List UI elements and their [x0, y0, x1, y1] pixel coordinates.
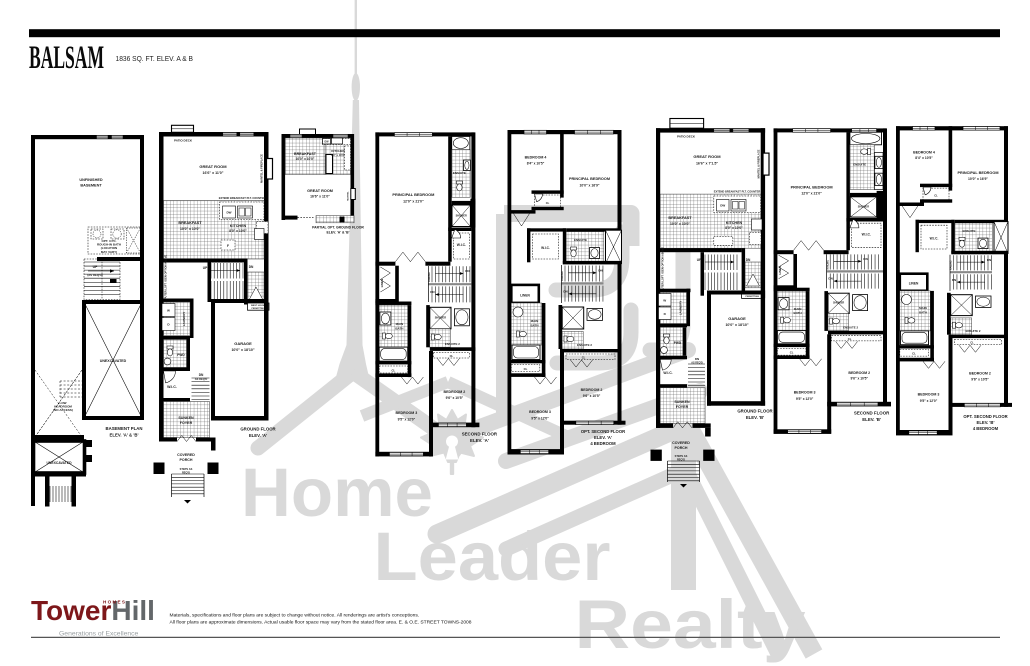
- svg-text:CL: CL: [450, 354, 454, 358]
- svg-text:OPT. SECOND FLOOR: OPT. SECOND FLOOR: [963, 414, 1007, 419]
- svg-text:LINEN: LINEN: [380, 279, 384, 287]
- svg-text:ELEV. 'B': ELEV. 'B': [746, 415, 764, 420]
- svg-text:GROUND FLOOR: GROUND FLOOR: [737, 409, 773, 414]
- svg-text:DW: DW: [227, 211, 232, 215]
- svg-text:10'0" x 18'10": 10'0" x 18'10": [231, 348, 254, 352]
- svg-text:ENSUITE: ENSUITE: [853, 163, 866, 167]
- svg-text:SECOND FLOOR: SECOND FLOOR: [462, 432, 498, 437]
- svg-text:BREAKFAST: BREAKFAST: [178, 221, 202, 225]
- svg-text:W: W: [167, 309, 170, 313]
- svg-text:RAILING: RAILING: [826, 260, 829, 270]
- svg-text:BEDROOM 4: BEDROOM 4: [525, 156, 547, 160]
- svg-text:W.I.C.: W.I.C.: [167, 385, 177, 389]
- svg-text:MAY VARY): MAY VARY): [101, 250, 117, 254]
- svg-text:9'6" x 10'5": 9'6" x 10'5": [583, 394, 601, 398]
- svg-text:GREAT ROOM: GREAT ROOM: [199, 164, 227, 169]
- svg-text:Materials, specifications and: Materials, specifications and floor plan…: [170, 612, 420, 618]
- svg-text:BEDROOM 4: BEDROOM 4: [913, 150, 935, 154]
- svg-text:ELEV. 'A': ELEV. 'A': [470, 438, 489, 443]
- svg-text:FOYER: FOYER: [180, 421, 193, 425]
- svg-text:DN: DN: [695, 357, 699, 361]
- svg-text:H O M E S: H O M E S: [103, 599, 125, 604]
- svg-text:10'0" x 16'9": 10'0" x 16'9": [580, 184, 600, 188]
- svg-text:PORCH: PORCH: [675, 446, 688, 450]
- svg-text:10'0" x 10'0": 10'0" x 10'0": [670, 222, 690, 226]
- svg-text:10'0" x 10'0": 10'0" x 10'0": [180, 227, 200, 231]
- svg-text:9'5" x 12'0": 9'5" x 12'0": [796, 397, 814, 401]
- svg-text:TowerHill: TowerHill: [31, 595, 155, 626]
- svg-text:9'5" x 12'0": 9'5" x 12'0": [398, 418, 416, 422]
- svg-text:BEDROOM 3: BEDROOM 3: [529, 410, 551, 414]
- svg-text:BEDROOM 2: BEDROOM 2: [444, 390, 466, 394]
- svg-text:BEDROOM 2: BEDROOM 2: [581, 388, 603, 392]
- svg-text:ENSUITE: ENSUITE: [962, 229, 975, 233]
- svg-text:BATH: BATH: [794, 311, 802, 315]
- svg-text:4 BEDROOM: 4 BEDROOM: [590, 441, 616, 446]
- svg-text:UP: UP: [93, 265, 98, 269]
- svg-text:DN: DN: [465, 269, 469, 273]
- svg-text:8'0" x 10'0": 8'0" x 10'0": [725, 226, 743, 230]
- svg-text:LAUNDRY: LAUNDRY: [182, 312, 186, 327]
- svg-text:1836 SQ. FT. ELEV. A & B: 1836 SQ. FT. ELEV. A & B: [116, 54, 194, 63]
- svg-text:DN: DN: [987, 258, 991, 262]
- svg-text:BASEMENT: BASEMENT: [80, 184, 102, 188]
- svg-text:Generations of Excellence: Generations of Excellence: [59, 630, 139, 637]
- svg-text:GROUND FLOOR: GROUND FLOOR: [240, 427, 276, 432]
- svg-text:UNFINISHED: UNFINISHED: [79, 178, 102, 182]
- svg-text:(NO ACCESS): (NO ACCESS): [53, 408, 73, 412]
- svg-text:All floor plans are approximat: All floor plans are approximate dimensio…: [170, 620, 472, 626]
- svg-text:ENSUITE 2: ENSUITE 2: [445, 342, 460, 346]
- svg-text:PERMITTING: PERMITTING: [251, 308, 265, 310]
- svg-text:9'6" x 10'5": 9'6" x 10'5": [851, 377, 869, 381]
- svg-text:DN: DN: [249, 265, 254, 269]
- svg-text:BREAKFAST: BREAKFAST: [668, 216, 692, 220]
- svg-text:MANTEL & FIREPLACE: MANTEL & FIREPLACE: [757, 149, 761, 178]
- svg-text:CL: CL: [848, 337, 852, 341]
- svg-text:W: W: [663, 299, 666, 303]
- svg-text:SECOND FLOOR: SECOND FLOOR: [854, 411, 890, 416]
- svg-text:10'0" x 10'0": 10'0" x 10'0": [296, 157, 315, 161]
- svg-text:DN: DN: [828, 277, 832, 281]
- svg-text:Leader: Leader: [374, 518, 611, 595]
- svg-text:ELEV. 'A' & 'B': ELEV. 'A' & 'B': [327, 230, 350, 234]
- svg-text:ENSUITE 2: ENSUITE 2: [966, 329, 981, 333]
- svg-text:10'0" x 18'10": 10'0" x 18'10": [725, 323, 748, 327]
- svg-text:SUNKEN: SUNKEN: [178, 416, 194, 420]
- svg-text:WEST HOUSE: WEST HOUSE: [251, 305, 266, 307]
- svg-text:STEPS AS: STEPS AS: [675, 454, 688, 458]
- svg-text:W.I.C.: W.I.C.: [862, 232, 871, 236]
- svg-text:PATIO DECK: PATIO DECK: [677, 135, 696, 139]
- svg-text:PRINCIPAL BEDROOM: PRINCIPAL BEDROOM: [791, 184, 833, 189]
- svg-text:SHOWER: SHOWER: [833, 302, 844, 305]
- svg-text:PWD: PWD: [177, 353, 185, 357]
- svg-text:16'6" x 11'0": 16'6" x 11'0": [310, 195, 330, 199]
- svg-text:9'5" x 12'0": 9'5" x 12'0": [531, 417, 549, 421]
- svg-text:DN: DN: [598, 269, 602, 273]
- svg-text:LAUNDRY: LAUNDRY: [679, 301, 683, 316]
- svg-text:W.I.C.: W.I.C.: [541, 246, 550, 250]
- svg-text:ELEV. 'A': ELEV. 'A': [594, 435, 612, 440]
- svg-text:KITCHEN: KITCHEN: [331, 149, 344, 153]
- svg-text:AS REQ'D: AS REQ'D: [691, 361, 703, 364]
- svg-text:PARTIAL OPT. GROUND FLOOR: PARTIAL OPT. GROUND FLOOR: [312, 226, 364, 230]
- svg-text:DN: DN: [952, 278, 956, 282]
- svg-text:8'0" x 10'0": 8'0" x 10'0": [331, 153, 346, 157]
- svg-text:AS REQ'D: AS REQ'D: [195, 377, 208, 381]
- svg-text:ENSUITE: ENSUITE: [574, 238, 587, 242]
- svg-text:PERMITTING: PERMITTING: [746, 296, 760, 298]
- svg-text:PWD: PWD: [674, 341, 682, 345]
- svg-text:BATH: BATH: [395, 327, 403, 331]
- svg-text:BEDROOM 3: BEDROOM 3: [794, 391, 816, 395]
- svg-text:MAIN: MAIN: [531, 319, 539, 323]
- svg-text:DN: DN: [430, 290, 434, 294]
- svg-text:LINEN: LINEN: [520, 294, 530, 298]
- svg-text:CL: CL: [790, 351, 794, 355]
- svg-text:EXTEND BREAKFAST PLT. COUNTER: EXTEND BREAKFAST PLT. COUNTER: [219, 196, 266, 200]
- svg-text:PATIO DECK: PATIO DECK: [174, 139, 193, 143]
- svg-text:PRINCIPAL BEDROOM: PRINCIPAL BEDROOM: [392, 192, 434, 197]
- svg-text:W.I.C.: W.I.C.: [457, 243, 466, 247]
- svg-text:PRINCIPAL BEDROOM: PRINCIPAL BEDROOM: [569, 177, 610, 181]
- svg-text:DN: DN: [199, 373, 204, 377]
- svg-text:F: F: [227, 244, 229, 248]
- svg-text:BEDROOM 2: BEDROOM 2: [969, 372, 991, 376]
- svg-text:ENSUITE 2: ENSUITE 2: [843, 326, 858, 330]
- svg-text:RAILING: RAILING: [428, 272, 431, 282]
- svg-text:COVERED: COVERED: [177, 453, 195, 457]
- svg-text:ELEV. 'A' & 'B': ELEV. 'A' & 'B': [110, 432, 139, 437]
- svg-text:COVERED: COVERED: [672, 441, 690, 445]
- svg-text:DN: DN: [746, 258, 751, 262]
- svg-text:GREAT ROOM: GREAT ROOM: [693, 154, 721, 159]
- svg-text:OPT. SECOND FLOOR: OPT. SECOND FLOOR: [581, 429, 625, 434]
- svg-text:SHOWER: SHOWER: [456, 215, 467, 218]
- svg-text:SHOWER: SHOWER: [858, 206, 869, 209]
- svg-text:16'6" x 11'0": 16'6" x 11'0": [203, 171, 224, 175]
- svg-text:10'0" x 16'9": 10'0" x 16'9": [968, 177, 988, 181]
- svg-text:BREAKFAST: BREAKFAST: [294, 152, 317, 156]
- svg-text:DN: DN: [863, 257, 867, 261]
- svg-text:8'4" x 10'5": 8'4" x 10'5": [527, 162, 545, 166]
- svg-text:GREAT ROOM: GREAT ROOM: [307, 189, 333, 193]
- svg-text:9'6" x 10'5": 9'6" x 10'5": [971, 377, 989, 381]
- svg-text:EXTEND BREAKFAST PLT. COUNTER: EXTEND BREAKFAST PLT. COUNTER: [714, 190, 761, 194]
- svg-text:DN: DN: [563, 290, 567, 294]
- svg-text:BEDROOM 3: BEDROOM 3: [396, 411, 418, 415]
- svg-text:9'6" x 10'5": 9'6" x 10'5": [446, 396, 464, 400]
- svg-text:LINEN: LINEN: [778, 266, 782, 274]
- svg-text:CL: CL: [970, 341, 974, 345]
- svg-text:ENSUITE: ENSUITE: [453, 171, 466, 175]
- svg-text:KITCHEN: KITCHEN: [230, 224, 247, 228]
- svg-text:GARAGE: GARAGE: [728, 316, 746, 321]
- svg-text:BATH: BATH: [530, 324, 538, 328]
- svg-text:12'0" x 21'0": 12'0" x 21'0": [403, 200, 424, 204]
- svg-text:16'6" x 7'1.5": 16'6" x 7'1.5": [696, 162, 718, 166]
- svg-text:CL: CL: [582, 356, 586, 360]
- svg-text:9'5" x 12'0": 9'5" x 12'0": [920, 399, 938, 403]
- svg-text:ELEV. 'A': ELEV. 'A': [249, 433, 267, 438]
- svg-text:FOYER: FOYER: [676, 405, 689, 409]
- svg-text:UNEXCAVATED: UNEXCAVATED: [46, 461, 72, 465]
- svg-text:UNEXCAVATED: UNEXCAVATED: [100, 359, 127, 363]
- svg-text:CL: CL: [392, 369, 396, 373]
- svg-text:8'4" x 10'5": 8'4" x 10'5": [915, 156, 933, 160]
- svg-text:LINEN: LINEN: [909, 282, 919, 286]
- svg-text:4 BEDROOM: 4 BEDROOM: [973, 426, 999, 431]
- svg-text:BATH: BATH: [919, 310, 927, 314]
- svg-text:ENSUITE 2: ENSUITE 2: [577, 343, 592, 347]
- svg-text:DW: DW: [720, 204, 725, 208]
- svg-text:ELEV. 'B': ELEV. 'B': [977, 420, 995, 425]
- svg-text:BEDROOM 2: BEDROOM 2: [848, 371, 870, 375]
- svg-text:COMPUTER LOFT / DEN OPTION ABO: COMPUTER LOFT / DEN OPTION ABOVE: [164, 254, 168, 305]
- svg-text:GARAGE: GARAGE: [234, 341, 252, 346]
- svg-text:PORCH: PORCH: [180, 458, 193, 462]
- svg-text:CL: CL: [524, 367, 528, 371]
- svg-text:CL: CL: [934, 194, 938, 198]
- svg-text:MANTEL: MANTEL: [347, 191, 350, 201]
- svg-text:12'0" x 21'0": 12'0" x 21'0": [801, 191, 822, 195]
- svg-text:SUNKEN: SUNKEN: [674, 400, 690, 404]
- svg-text:W.I.C.: W.I.C.: [930, 237, 939, 241]
- svg-text:KITCHEN: KITCHEN: [726, 221, 743, 225]
- svg-text:SHOWER: SHOWER: [435, 317, 446, 320]
- svg-text:W.I.C.: W.I.C.: [663, 371, 672, 375]
- svg-text:MAIN: MAIN: [396, 322, 404, 326]
- svg-text:RAILING: RAILING: [561, 271, 564, 281]
- svg-text:CL: CL: [912, 352, 916, 356]
- svg-text:(AS REQ'D): (AS REQ'D): [87, 273, 102, 277]
- svg-text:BEDROOM 3: BEDROOM 3: [918, 393, 940, 397]
- svg-text:RAILING: RAILING: [950, 260, 953, 270]
- svg-text:CL: CL: [546, 201, 550, 205]
- svg-text:BASEMENT PLAN: BASEMENT PLAN: [105, 426, 142, 431]
- svg-text:BALSAM: BALSAM: [29, 39, 104, 75]
- svg-text:Realty: Realty: [575, 586, 806, 663]
- svg-text:STEPS AS: STEPS AS: [180, 467, 193, 471]
- svg-text:8'0" x 10'0": 8'0" x 10'0": [229, 229, 247, 233]
- svg-text:ELEV. 'B': ELEV. 'B': [862, 417, 881, 422]
- svg-text:PRINCIPAL BEDROOM: PRINCIPAL BEDROOM: [958, 171, 999, 175]
- svg-text:MANTEL & FIREPLACE: MANTEL & FIREPLACE: [260, 154, 264, 183]
